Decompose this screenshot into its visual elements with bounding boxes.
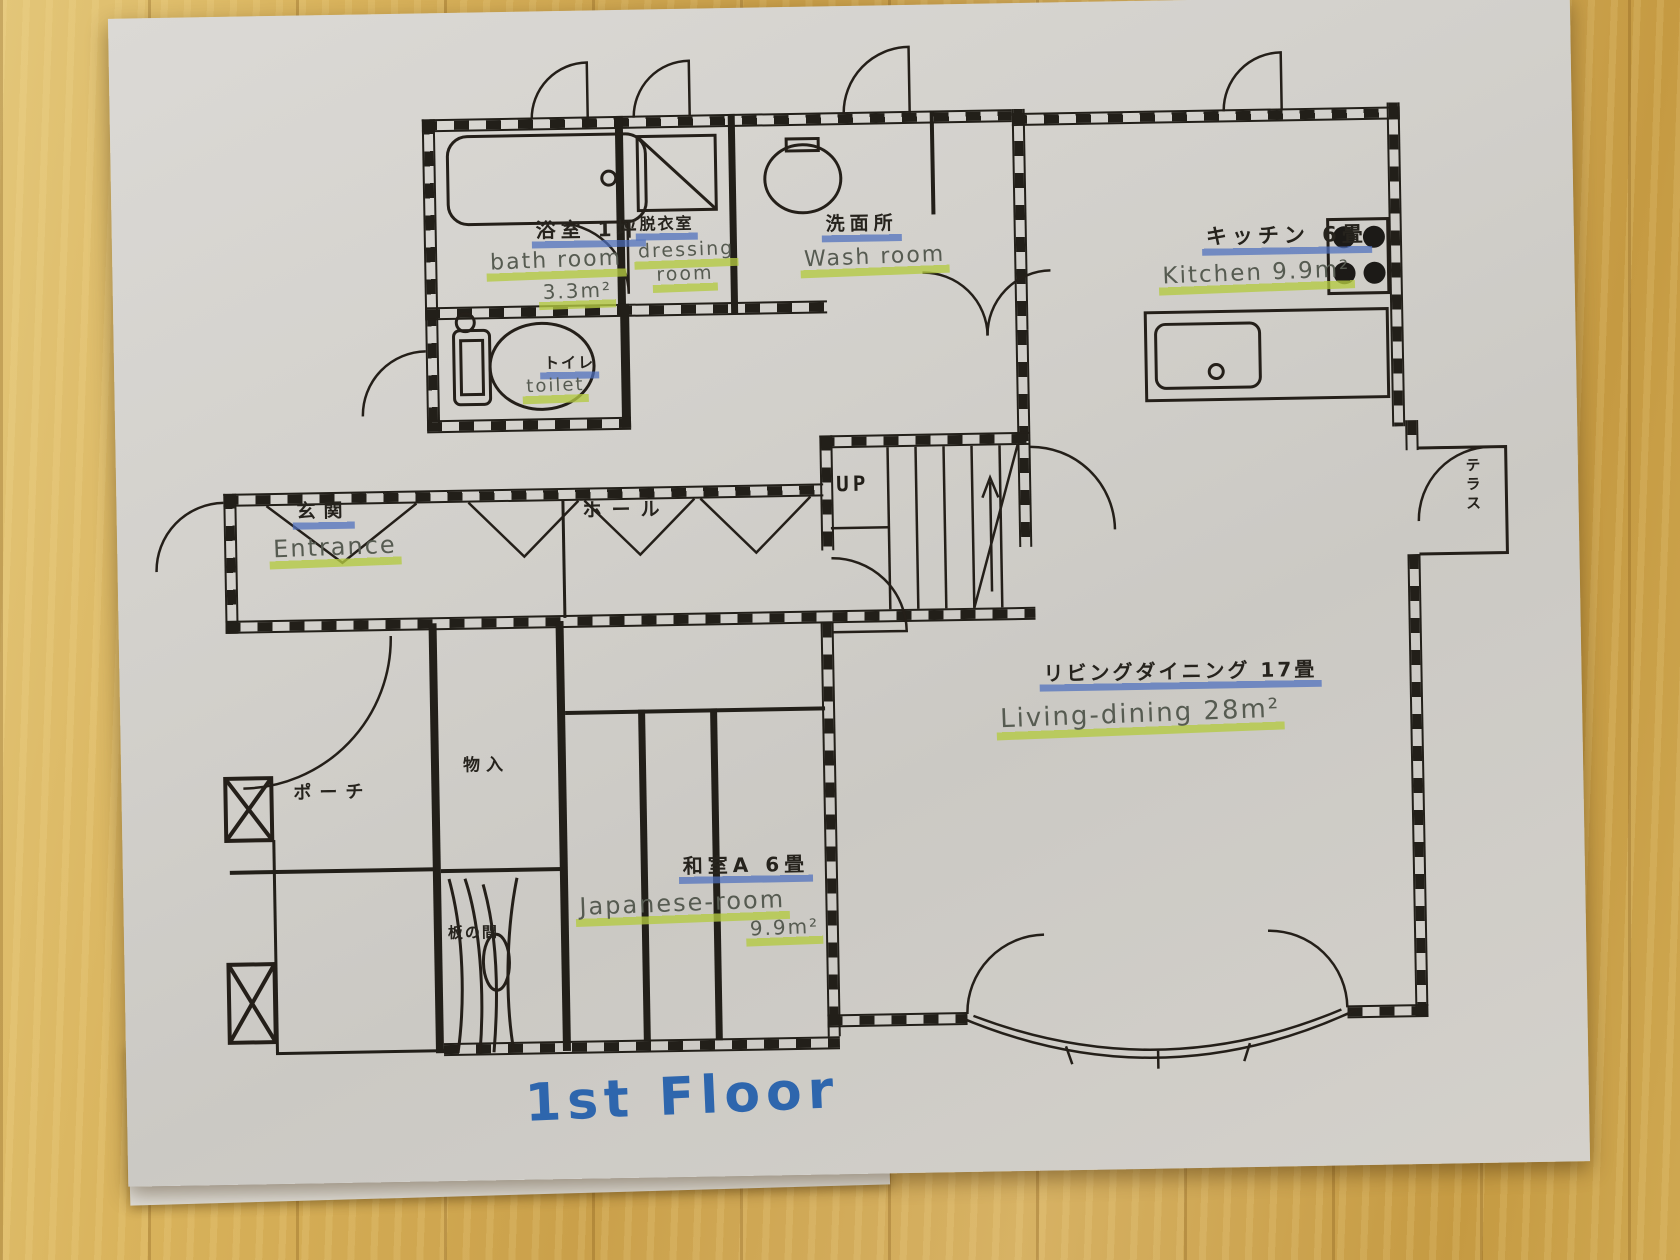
door-top-wash xyxy=(843,47,910,114)
bath-area: 3.3m² xyxy=(538,279,616,310)
kitchen-label-jp: キッチン 6畳 xyxy=(1202,223,1372,256)
wash-basin xyxy=(764,144,841,213)
door-wash-double-right xyxy=(986,270,1051,335)
toilet-label-en: toilet xyxy=(522,376,589,404)
door-hall-living xyxy=(831,557,906,632)
storage-label-jp: 物入 xyxy=(463,756,509,775)
japanese-room-label-jp: 和室A 6畳 xyxy=(679,853,814,884)
door-top-kitchen xyxy=(1223,52,1282,111)
door-entrance-left xyxy=(155,503,224,572)
kitchen-sink xyxy=(1155,323,1260,389)
entrance-label-en: Entrance xyxy=(269,532,402,569)
washing-machine-diagonal xyxy=(637,135,716,210)
bay-window xyxy=(956,929,1358,1072)
door-top-2 xyxy=(633,61,690,118)
washroom-label-jp: 洗面所 xyxy=(821,213,901,242)
fixtures-layer xyxy=(108,0,1590,1187)
washroom-label-en: Wash room xyxy=(800,243,950,279)
kitchen-faucet xyxy=(1209,364,1223,378)
wood-floor-label-jp: 板の間 xyxy=(448,924,499,941)
terrace-outline xyxy=(1418,447,1508,555)
japanese-room-area: 9.9m² xyxy=(745,916,823,947)
toilet-tank-inner xyxy=(461,340,484,394)
wood-grain xyxy=(449,878,520,1053)
door-porch xyxy=(241,636,394,789)
entrance-label-jp: 玄関 xyxy=(292,501,354,530)
toilet-hand-basin xyxy=(456,314,474,332)
living-dining-label-jp: リビングダイニング 17畳 xyxy=(1039,658,1321,692)
dressing-label-en2: room xyxy=(652,264,718,293)
door-wash-double-left xyxy=(922,272,987,337)
terrace-label-jp: テラス xyxy=(1464,457,1481,514)
stairs-up-label: UP xyxy=(836,472,870,497)
door-top-1 xyxy=(531,62,588,119)
stairs-up-arrow xyxy=(982,477,1000,591)
hall-label-jp: ホール xyxy=(582,499,669,521)
floor-plan-paper: 浴室 1坪 bath room 3.3m² 脱衣室 dressing room … xyxy=(108,0,1590,1187)
bathtub-drain xyxy=(602,171,616,185)
dressing-label-jp: 脱衣室 xyxy=(635,215,697,241)
door-toilet xyxy=(362,351,427,416)
photo-of-floor-plan: 浴室 1坪 bath room 3.3m² 脱衣室 dressing room … xyxy=(0,0,1680,1260)
bath-label-en: bath room xyxy=(486,246,627,281)
door-stairs-living xyxy=(1030,445,1115,530)
porch-label-jp: ポーチ xyxy=(293,782,371,803)
post-lower xyxy=(228,964,275,1043)
bath-label-jp: 浴室 1坪 xyxy=(531,217,645,248)
